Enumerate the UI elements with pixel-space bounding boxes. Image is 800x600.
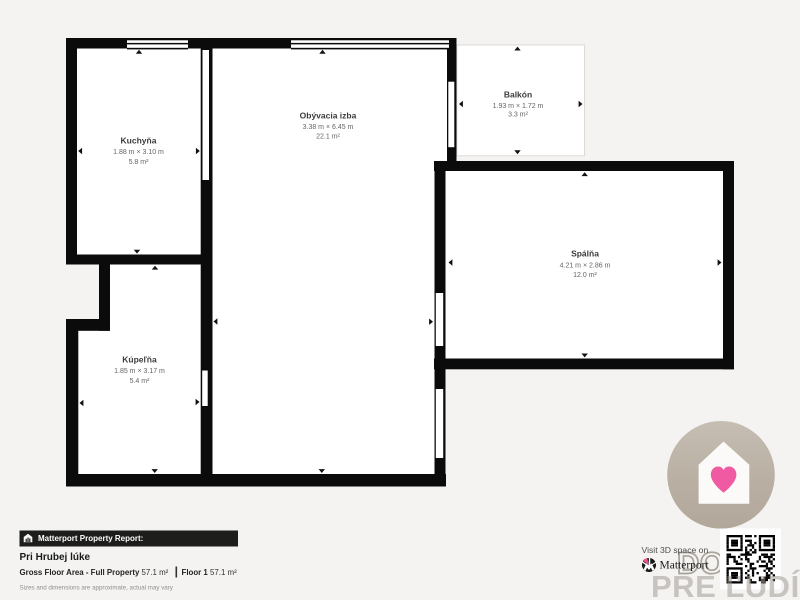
svg-text:Floor 1 57.1 m²: Floor 1 57.1 m²	[182, 568, 238, 577]
svg-text:5.8 m²: 5.8 m²	[129, 159, 150, 166]
svg-text:4.21 m × 2.86 m: 4.21 m × 2.86 m	[560, 262, 611, 269]
svg-text:Spálňa: Spálňa	[571, 249, 599, 259]
svg-text:12.0 m²: 12.0 m²	[573, 272, 597, 279]
svg-text:Visit 3D space on: Visit 3D space on	[642, 545, 709, 555]
svg-text:Kuchyňa: Kuchyňa	[121, 136, 157, 146]
svg-text:3.38 m × 6.45 m: 3.38 m × 6.45 m	[303, 124, 354, 131]
svg-text:22.1 m²: 22.1 m²	[316, 134, 340, 141]
svg-text:Sizes and dimensions are appro: Sizes and dimensions are approximate, ac…	[20, 585, 174, 592]
svg-text:Pri Hrubej lúke: Pri Hrubej lúke	[20, 552, 91, 563]
svg-text:5.4 m²: 5.4 m²	[130, 378, 151, 385]
svg-text:Matterport Property Report:: Matterport Property Report:	[38, 534, 143, 543]
svg-text:1.85 m × 3.17 m: 1.85 m × 3.17 m	[114, 368, 165, 375]
svg-text:PRE ĽUDÍ: PRE ĽUDÍ	[651, 569, 800, 600]
svg-text:Kúpeľňa: Kúpeľňa	[122, 355, 157, 365]
svg-text:3.3 m²: 3.3 m²	[508, 112, 529, 119]
svg-text:1.93 m × 1.72 m: 1.93 m × 1.72 m	[493, 103, 544, 110]
svg-text:Balkón: Balkón	[504, 90, 532, 100]
svg-text:1.88 m × 3.10 m: 1.88 m × 3.10 m	[113, 149, 164, 156]
svg-text:Obývacia izba: Obývacia izba	[300, 111, 357, 121]
svg-text:Gross Floor Area - Full Proper: Gross Floor Area - Full Property 57.1 m²	[20, 568, 169, 577]
